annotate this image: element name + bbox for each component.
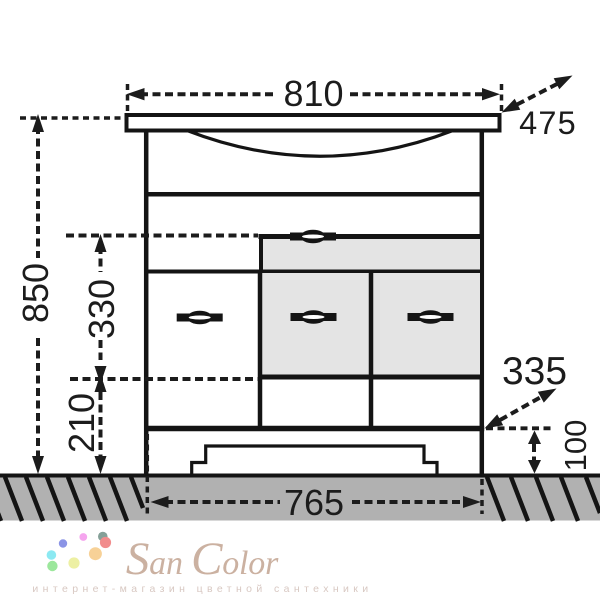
svg-text:475: 475 [519, 105, 577, 141]
svg-text:330: 330 [81, 279, 122, 339]
svg-text:810: 810 [283, 73, 343, 114]
svg-text:100: 100 [558, 420, 593, 472]
svg-text:интернет-магазин цветной санте: интернет-магазин цветной сантехники [32, 583, 372, 595]
svg-text:335: 335 [502, 350, 567, 393]
svg-text:765: 765 [284, 482, 344, 523]
svg-text:210: 210 [61, 393, 102, 453]
svg-text:San Color: San Color [126, 533, 279, 585]
svg-text:850: 850 [15, 263, 56, 323]
